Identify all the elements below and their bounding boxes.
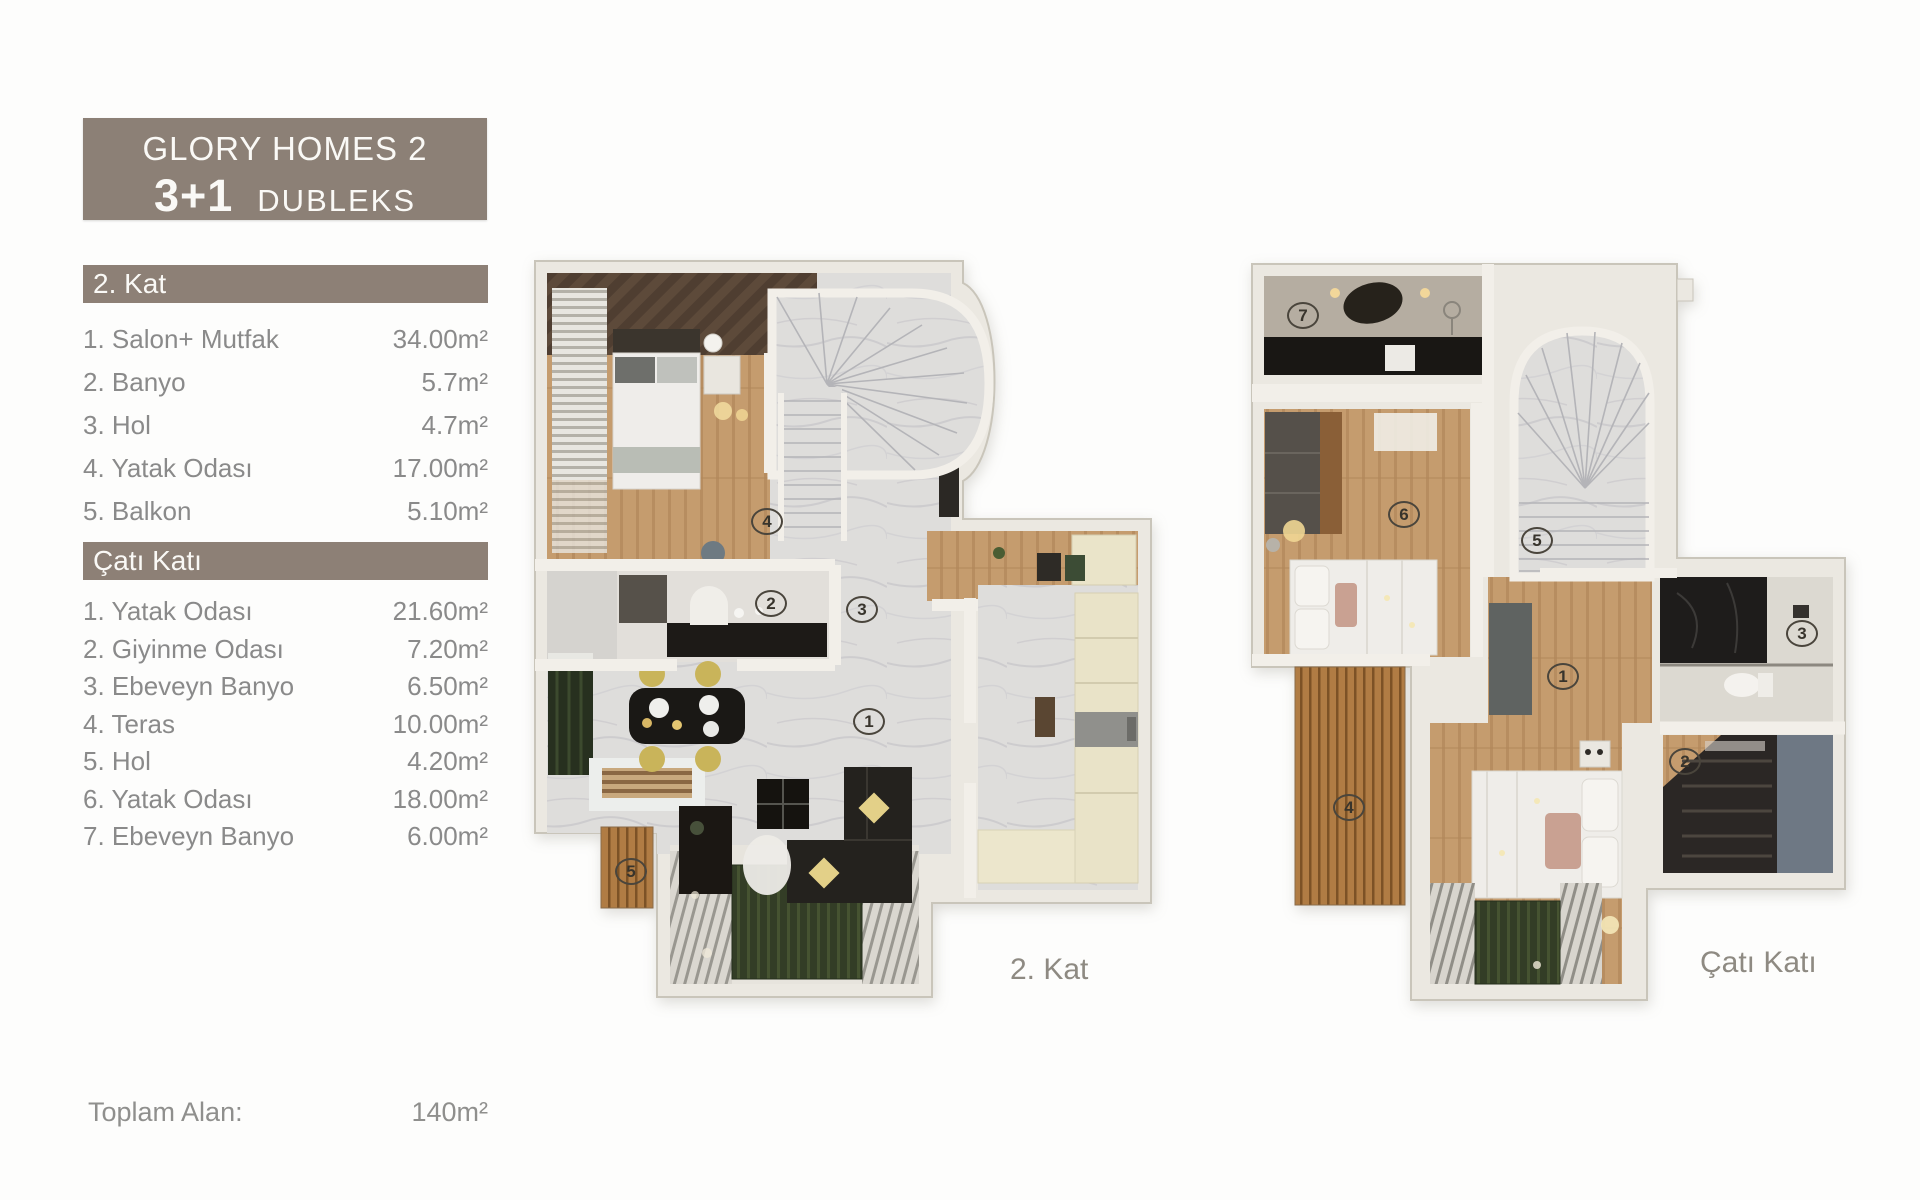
- room-label: 1. Yatak Odası: [83, 593, 253, 631]
- room-marker-cati-4: 4: [1333, 794, 1365, 821]
- room-row: 1. Yatak Odası21.60m²: [83, 593, 488, 631]
- room-area: 7.20m²: [407, 631, 488, 669]
- room-row: 4. Teras10.00m²: [83, 706, 488, 744]
- room-label: 2. Banyo: [83, 361, 186, 404]
- room-label: 1. Salon+ Mutfak: [83, 318, 279, 361]
- room-row: 6. Yatak Odası18.00m²: [83, 781, 488, 819]
- room-label: 2. Giyinme Odası: [83, 631, 284, 669]
- room-label: 5. Balkon: [83, 490, 191, 533]
- room-marker-number: 2: [766, 594, 775, 614]
- room-label: 7. Ebeveyn Banyo: [83, 818, 294, 856]
- room-area: 5.10m²: [407, 490, 488, 533]
- brochure-page: GLORY HOMES 2 3+1DUBLEKS 2. Kat 1. Salon…: [0, 0, 1920, 1200]
- room-marker-kat2-3: 3: [846, 596, 878, 623]
- room-list-kat2: 1. Salon+ Mutfak34.00m² 2. Banyo5.7m² 3.…: [83, 318, 488, 533]
- room-row: 5. Balkon5.10m²: [83, 490, 488, 533]
- total-area-value: 140m²: [411, 1097, 488, 1128]
- room-label: 3. Hol: [83, 404, 151, 447]
- room-area: 5.7m²: [422, 361, 488, 404]
- project-title: GLORY HOMES 2: [83, 130, 487, 168]
- room-marker-kat2-1: 1: [853, 708, 885, 735]
- room-row: 3. Ebeveyn Banyo6.50m²: [83, 668, 488, 706]
- room-marker-cati-7: 7: [1287, 302, 1319, 329]
- section-title-cati: Çatı Katı: [83, 542, 488, 580]
- room-row: 2. Banyo5.7m²: [83, 361, 488, 404]
- room-label: 4. Yatak Odası: [83, 447, 253, 490]
- room-label: 5. Hol: [83, 743, 151, 781]
- floorplan-kat2-drawing: [527, 253, 1155, 1008]
- total-area-label: Toplam Alan:: [88, 1097, 243, 1128]
- room-marker-number: 4: [762, 512, 771, 532]
- section-title-kat2: 2. Kat: [83, 265, 488, 303]
- room-area: 17.00m²: [393, 447, 488, 490]
- room-area: 6.50m²: [407, 668, 488, 706]
- room-area: 10.00m²: [393, 706, 488, 744]
- room-label: 4. Teras: [83, 706, 175, 744]
- room-area: 21.60m²: [393, 593, 488, 631]
- unit-type-rooms: 3+1: [154, 170, 233, 221]
- room-row: 7. Ebeveyn Banyo6.00m²: [83, 818, 488, 856]
- room-area: 34.00m²: [393, 318, 488, 361]
- unit-type-kind: DUBLEKS: [257, 183, 416, 218]
- room-row: 4. Yatak Odası17.00m²: [83, 447, 488, 490]
- room-row: 2. Giyinme Odası7.20m²: [83, 631, 488, 669]
- plan-caption-cati: Çatı Katı: [1700, 946, 1817, 980]
- plan-caption-kat2: 2. Kat: [1010, 953, 1088, 987]
- project-title-box: GLORY HOMES 2 3+1DUBLEKS: [83, 118, 487, 220]
- room-marker-number: 6: [1399, 505, 1408, 525]
- room-row: 5. Hol4.20m²: [83, 743, 488, 781]
- room-marker-cati-6: 6: [1388, 501, 1420, 528]
- room-marker-number: 5: [626, 862, 635, 882]
- room-row: 3. Hol4.7m²: [83, 404, 488, 447]
- floorplan-kat2: 4 2 3 1 5: [527, 253, 1155, 1008]
- room-row: 1. Salon+ Mutfak34.00m²: [83, 318, 488, 361]
- room-marker-number: 3: [857, 600, 866, 620]
- room-label: 3. Ebeveyn Banyo: [83, 668, 294, 706]
- room-marker-kat2-2: 2: [755, 590, 787, 617]
- room-marker-cati-1: 1: [1547, 663, 1579, 690]
- room-marker-kat2-5: 5: [615, 858, 647, 885]
- room-area: 6.00m²: [407, 818, 488, 856]
- room-list-cati: 1. Yatak Odası21.60m² 2. Giyinme Odası7.…: [83, 593, 488, 856]
- room-marker-number: 5: [1532, 531, 1541, 551]
- room-marker-number: 1: [864, 712, 873, 732]
- room-marker-number: 2: [1680, 752, 1689, 772]
- unit-type: 3+1DUBLEKS: [83, 170, 487, 222]
- floorplan-cati-drawing: [1237, 253, 1852, 1008]
- room-marker-cati-2: 2: [1669, 748, 1701, 775]
- room-marker-number: 4: [1344, 798, 1353, 818]
- room-area: 4.20m²: [407, 743, 488, 781]
- room-area: 18.00m²: [393, 781, 488, 819]
- room-label: 6. Yatak Odası: [83, 781, 253, 819]
- floorplan-cati: 7 6 5 3 1 2 4: [1237, 253, 1852, 1008]
- room-marker-kat2-4: 4: [751, 508, 783, 535]
- room-marker-cati-5: 5: [1521, 527, 1553, 554]
- room-area: 4.7m²: [422, 404, 488, 447]
- room-marker-number: 1: [1558, 667, 1567, 687]
- room-marker-number: 7: [1298, 306, 1307, 326]
- room-marker-cati-3: 3: [1786, 620, 1818, 647]
- total-area-row: Toplam Alan: 140m²: [88, 1097, 488, 1128]
- room-marker-number: 3: [1797, 624, 1806, 644]
